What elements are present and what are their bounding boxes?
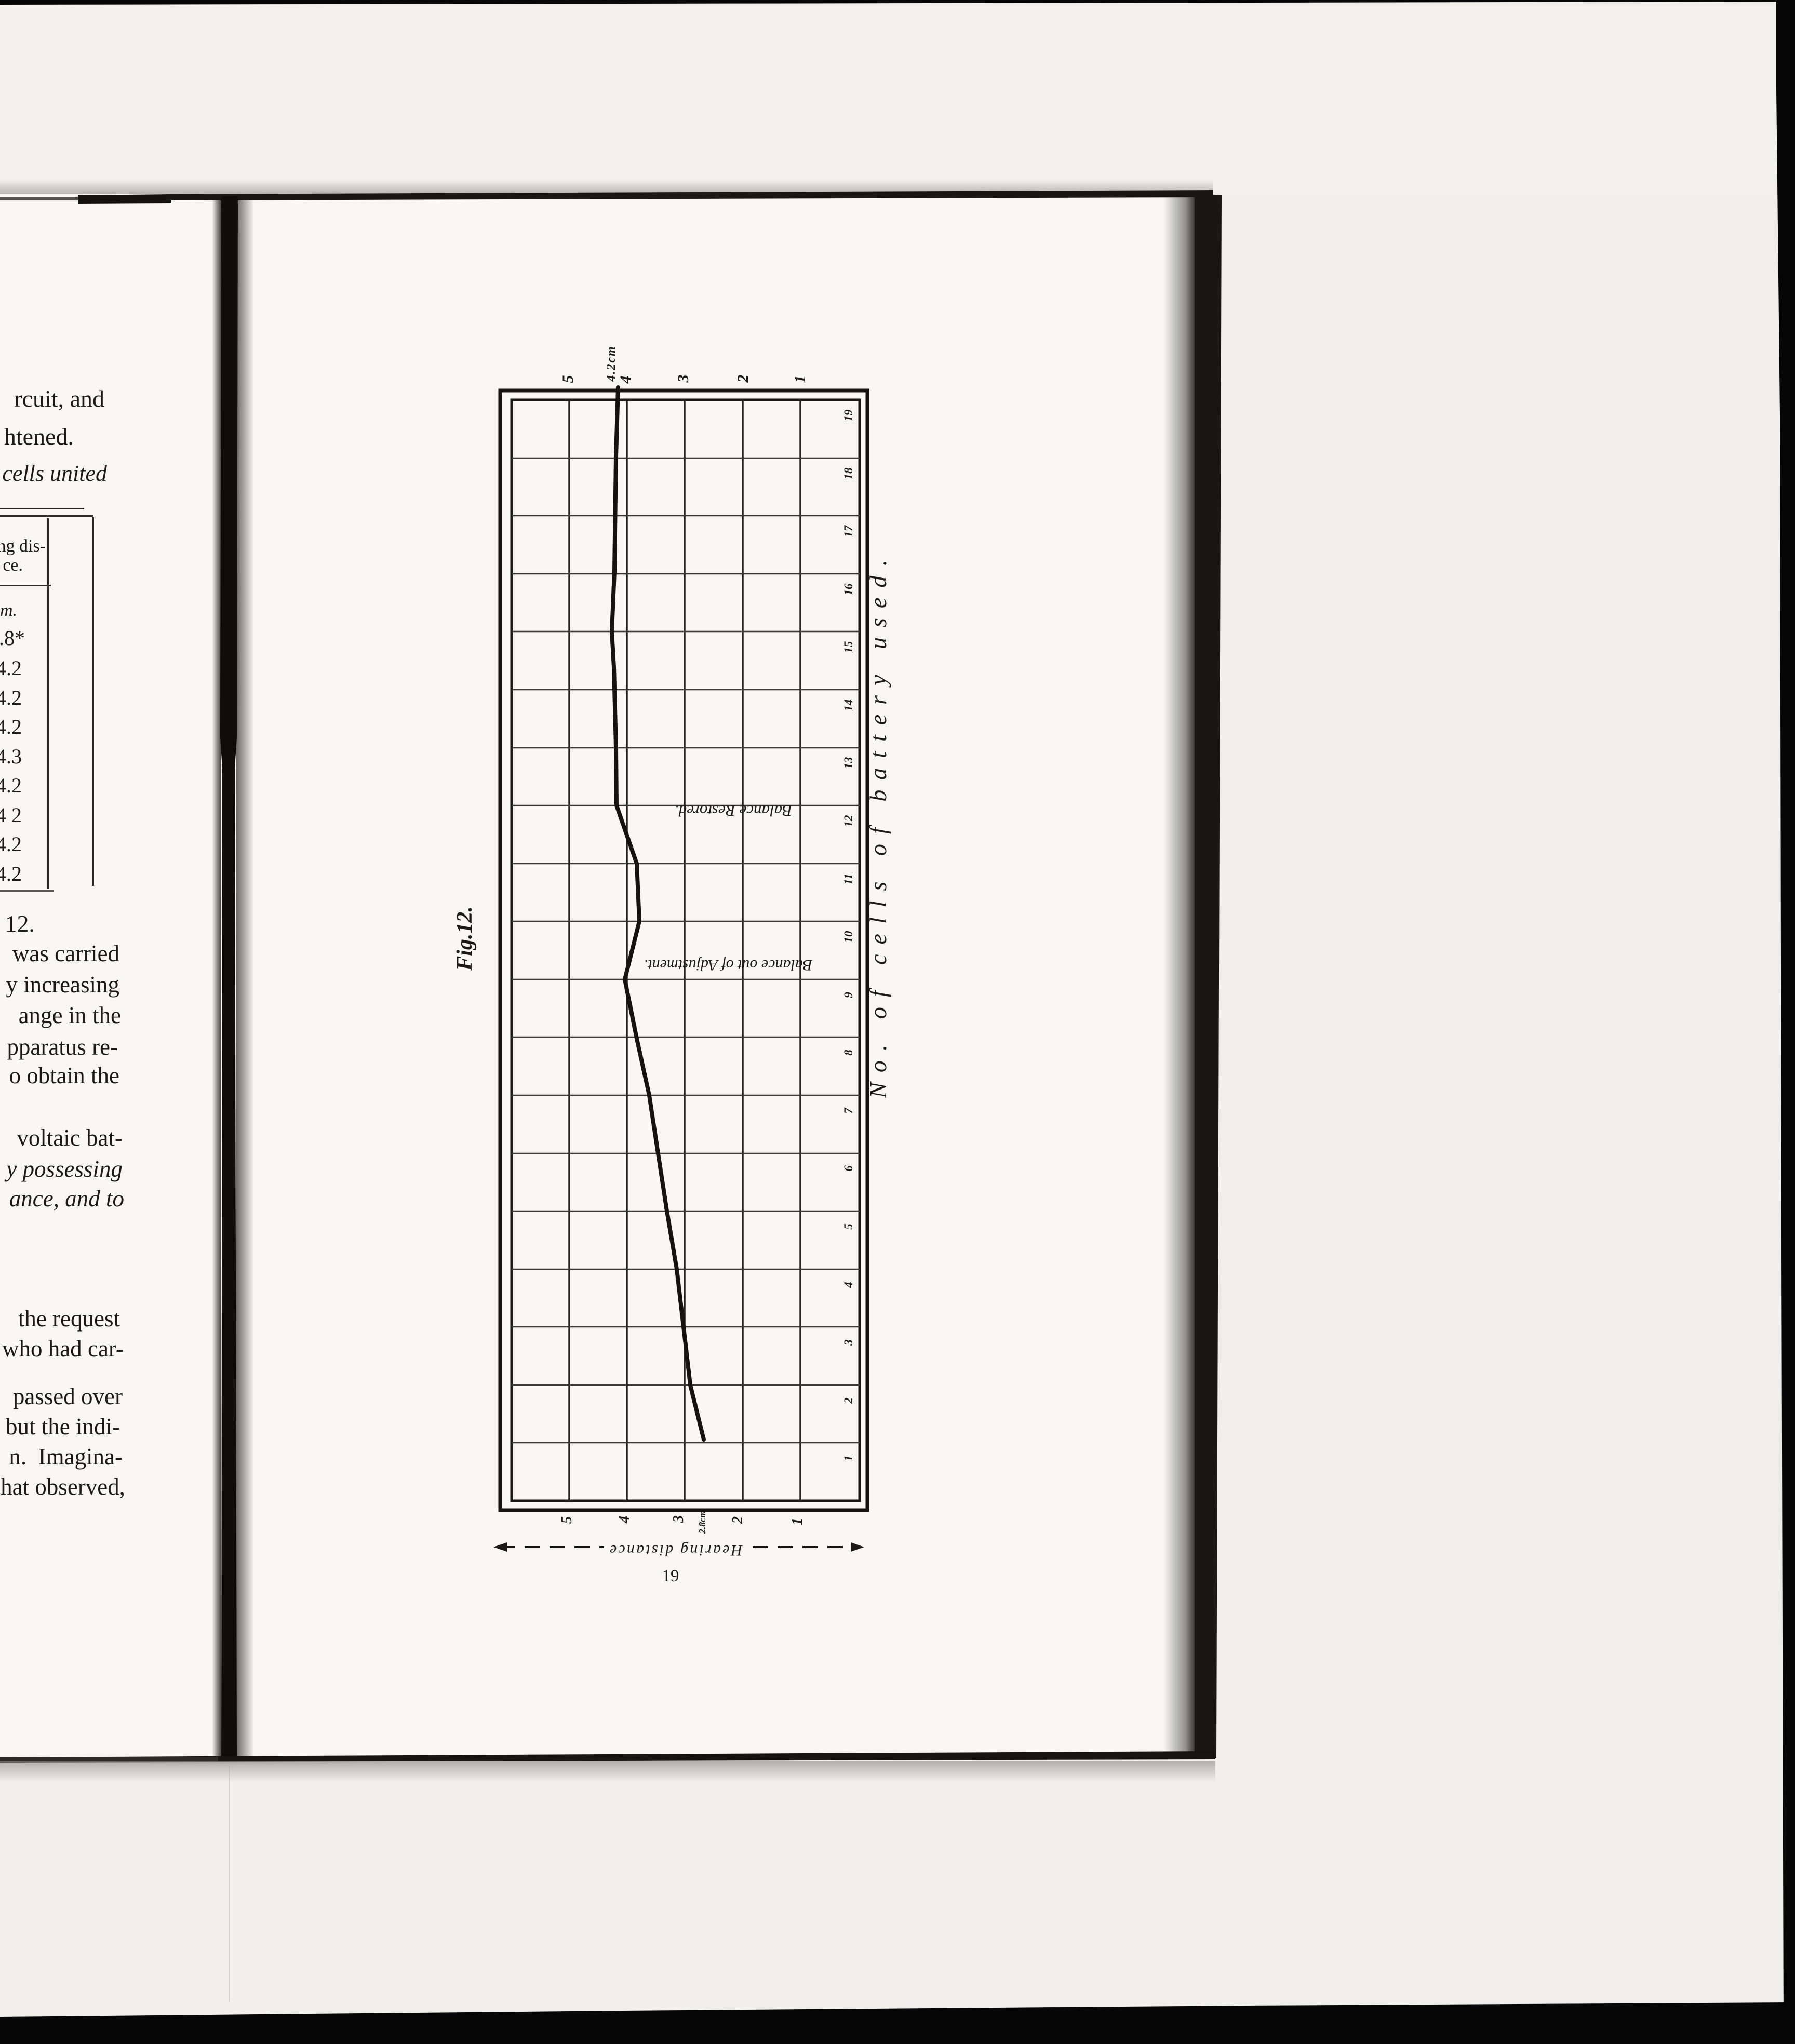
svg-text:was carried: was carried <box>12 940 119 966</box>
svg-text:who had car-: who had car- <box>2 1336 124 1362</box>
svg-text:3: 3 <box>842 1339 855 1346</box>
svg-text:ce.: ce. <box>3 556 23 575</box>
svg-text:Hearing distance: Hearing distance <box>608 1542 743 1559</box>
svg-text:htened.: htened. <box>4 423 74 450</box>
svg-text:16: 16 <box>842 583 855 596</box>
svg-text:ance, and to: ance, and to <box>9 1186 124 1212</box>
svg-text:14: 14 <box>842 700 855 711</box>
svg-text:4: 4 <box>617 376 634 384</box>
svg-text:13: 13 <box>842 757 855 769</box>
svg-text:4.2: 4.2 <box>0 774 22 797</box>
svg-text:3: 3 <box>671 1515 687 1523</box>
svg-text:4 2: 4 2 <box>0 803 22 827</box>
svg-text:15: 15 <box>842 641 855 653</box>
svg-text:n. Imagina-: n. Imagina- <box>9 1444 123 1470</box>
svg-text:y possessing: y possessing <box>4 1156 123 1182</box>
svg-text:4: 4 <box>617 1516 633 1524</box>
svg-text:7: 7 <box>842 1107 855 1114</box>
svg-text:m.: m. <box>0 601 17 620</box>
svg-text:4.2: 4.2 <box>0 686 22 709</box>
svg-text:2.8cm: 2.8cm <box>697 1511 707 1535</box>
svg-text:voltaic bat-: voltaic bat- <box>17 1125 123 1151</box>
svg-text:2: 2 <box>842 1397 855 1404</box>
svg-text:6: 6 <box>842 1165 855 1172</box>
svg-text:4: 4 <box>842 1282 855 1288</box>
svg-text:19: 19 <box>842 409 855 422</box>
svg-text:2: 2 <box>730 1516 746 1524</box>
svg-text:18: 18 <box>842 467 855 480</box>
svg-text:hat observed,: hat observed, <box>1 1474 125 1500</box>
svg-text:.8*: .8* <box>0 626 25 650</box>
svg-text:4.2: 4.2 <box>0 832 22 856</box>
svg-text:5: 5 <box>842 1223 855 1230</box>
svg-text:10: 10 <box>842 931 855 943</box>
svg-text:Balance Restored.: Balance Restored. <box>675 802 792 820</box>
svg-text:but the indi-: but the indi- <box>6 1414 120 1440</box>
svg-text:1: 1 <box>789 1518 806 1525</box>
svg-text:12: 12 <box>842 815 855 827</box>
svg-text:ng dis-: ng dis- <box>0 536 46 556</box>
svg-text:pparatus re-: pparatus re- <box>7 1034 118 1060</box>
svg-text:the request: the request <box>18 1306 120 1332</box>
svg-text:5: 5 <box>559 1516 575 1524</box>
svg-text:8: 8 <box>842 1050 855 1056</box>
svg-text:4.2: 4.2 <box>0 656 22 680</box>
svg-text:Fig.12.: Fig.12. <box>453 906 477 971</box>
svg-text:f cells united: f cells united <box>0 461 108 486</box>
svg-text:rcuit, and: rcuit, and <box>14 385 104 412</box>
svg-text:1: 1 <box>842 1455 855 1461</box>
svg-text:17: 17 <box>842 525 855 537</box>
svg-text:11: 11 <box>842 873 855 885</box>
svg-text:4.3: 4.3 <box>0 745 22 768</box>
svg-text:Balance out of Adjustment.: Balance out of Adjustment. <box>644 957 812 974</box>
svg-text:3: 3 <box>675 375 692 383</box>
svg-text:4.2: 4.2 <box>0 862 22 885</box>
svg-text:1: 1 <box>792 375 809 383</box>
svg-text:passed over: passed over <box>13 1383 123 1409</box>
svg-text:5: 5 <box>559 375 577 383</box>
svg-text:4.2cm: 4.2cm <box>605 345 618 382</box>
svg-text:19: 19 <box>662 1567 679 1585</box>
svg-text:No. of cells of battery used.: No. of cells of battery used. <box>865 550 891 1099</box>
svg-text:y increasing: y increasing <box>6 972 119 998</box>
svg-text:o obtain the: o obtain the <box>9 1063 119 1088</box>
svg-text:ange in the: ange in the <box>19 1002 121 1028</box>
svg-text:4.2: 4.2 <box>0 715 22 738</box>
svg-text:12.: 12. <box>5 910 35 937</box>
svg-text:9: 9 <box>842 992 855 998</box>
svg-text:2: 2 <box>734 375 752 383</box>
